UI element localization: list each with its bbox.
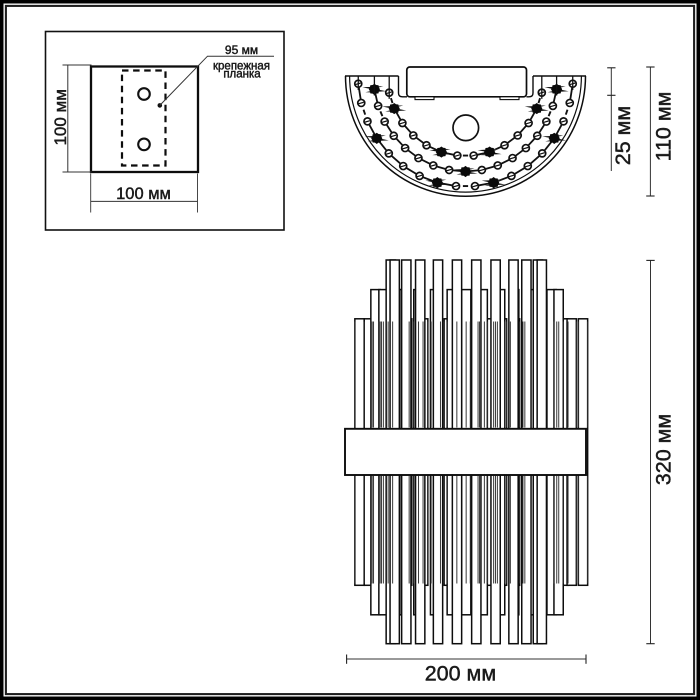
svg-text:200 мм: 200 мм — [425, 662, 496, 686]
svg-text:100 мм: 100 мм — [116, 185, 171, 203]
svg-text:95 мм: 95 мм — [225, 43, 258, 57]
svg-text:100 мм: 100 мм — [51, 89, 70, 145]
svg-text:320 мм: 320 мм — [652, 414, 676, 485]
svg-text:110 мм: 110 мм — [652, 92, 676, 162]
svg-text:планка: планка — [223, 69, 261, 81]
svg-text:25 мм: 25 мм — [611, 106, 635, 165]
